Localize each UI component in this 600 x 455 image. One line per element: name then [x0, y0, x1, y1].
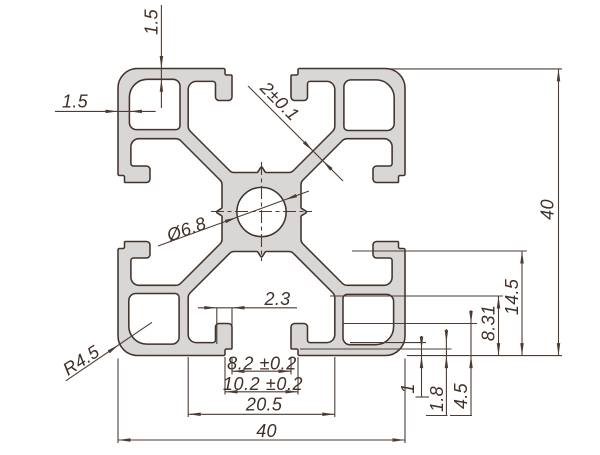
svg-text:40: 40	[256, 421, 277, 441]
svg-text:2.3: 2.3	[264, 289, 291, 309]
svg-text:1: 1	[398, 383, 418, 393]
svg-text:1.5: 1.5	[142, 8, 162, 35]
svg-text:1.8: 1.8	[427, 386, 447, 412]
svg-text:4.5: 4.5	[451, 382, 471, 409]
svg-text:40: 40	[538, 199, 558, 220]
svg-text:8.2 ±0.2: 8.2 ±0.2	[227, 354, 297, 374]
svg-text:20.5: 20.5	[245, 395, 283, 415]
svg-text:8.31: 8.31	[479, 305, 499, 341]
svg-text:10.2 ±0.2: 10.2 ±0.2	[223, 374, 303, 394]
svg-text:14.5: 14.5	[502, 278, 522, 315]
svg-text:1.5: 1.5	[62, 92, 89, 112]
